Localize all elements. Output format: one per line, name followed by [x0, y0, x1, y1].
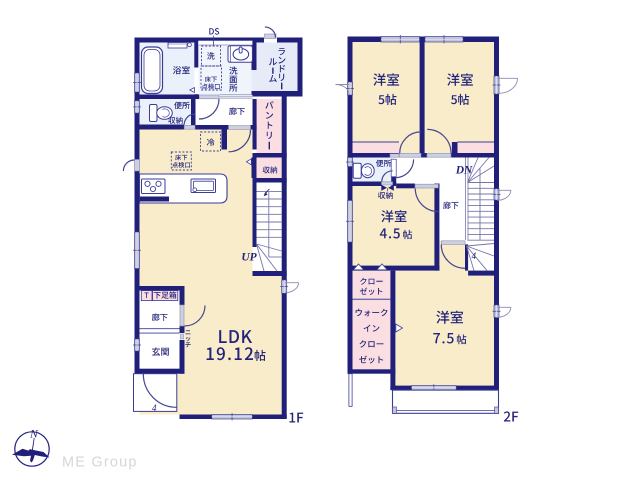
svg-text:4: 4	[152, 403, 157, 413]
svg-text:UP: UP	[241, 252, 257, 264]
svg-text:4: 4	[472, 251, 477, 261]
svg-text:ME Group: ME Group	[62, 455, 138, 471]
svg-text:DN: DN	[455, 165, 473, 177]
